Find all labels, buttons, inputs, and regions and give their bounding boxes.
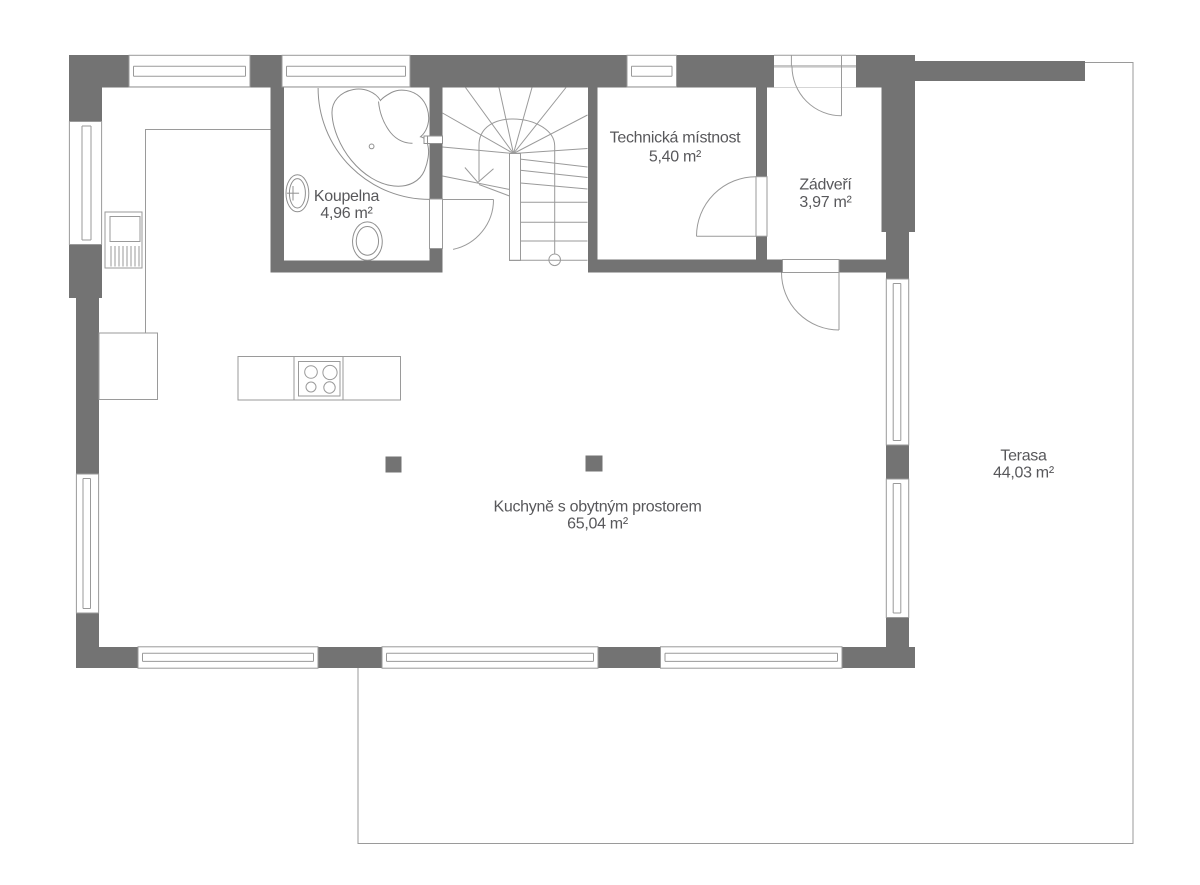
svg-text:Zádveří: Zádveří <box>799 177 852 194</box>
svg-text:Kuchyně s obytným prostorem: Kuchyně s obytným prostorem <box>494 499 702 516</box>
svg-text:44,03 m²: 44,03 m² <box>993 465 1055 482</box>
svg-text:4,96 m²: 4,96 m² <box>320 205 373 222</box>
svg-text:5,40 m²: 5,40 m² <box>649 149 702 166</box>
svg-text:65,04 m²: 65,04 m² <box>567 516 629 533</box>
svg-text:Technická místnost: Technická místnost <box>610 130 742 147</box>
svg-text:3,97 m²: 3,97 m² <box>799 194 852 211</box>
svg-text:Koupelna: Koupelna <box>314 188 380 205</box>
svg-text:Terasa: Terasa <box>1000 448 1047 465</box>
